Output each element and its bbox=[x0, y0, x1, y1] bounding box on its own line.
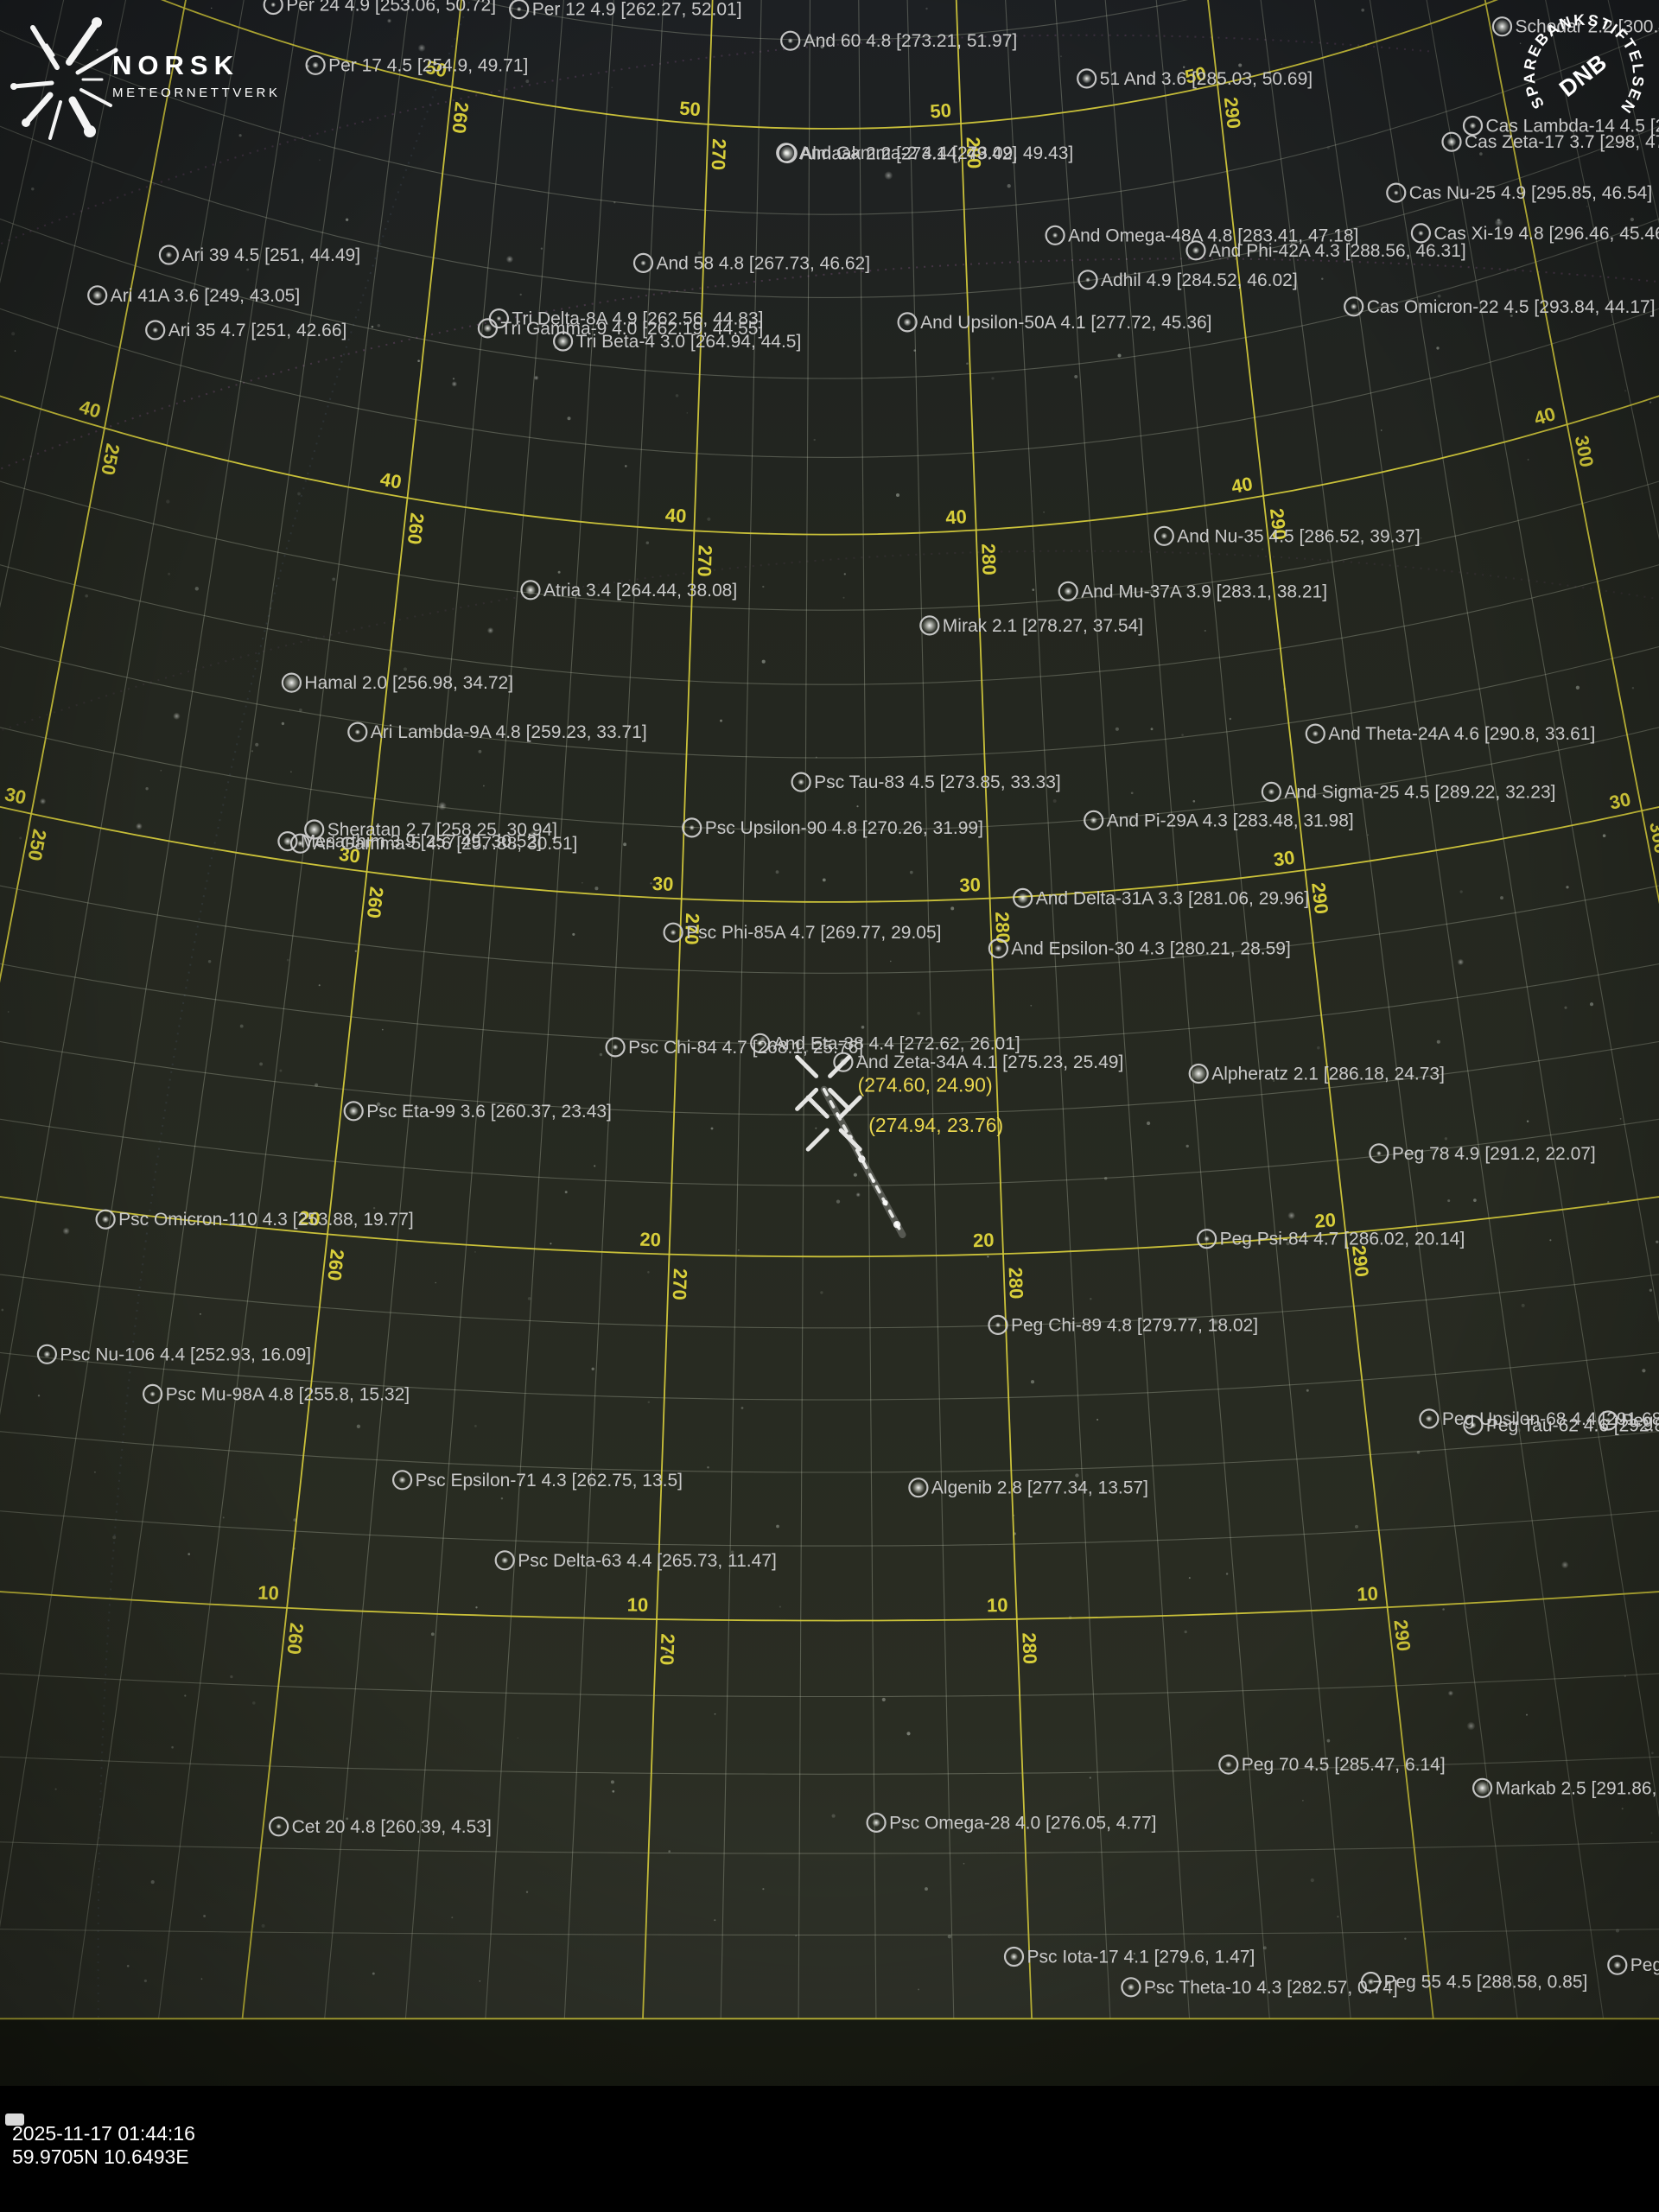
star-marker: Cas Omicron-22 4.5 [293.84, 44.17] bbox=[1344, 297, 1655, 317]
star-point bbox=[1613, 1961, 1621, 1969]
star-label: Peg 56 4.8 [296.3, 14.4] bbox=[1621, 1411, 1659, 1431]
star-label: Mirak 2.1 [278.27, 37.54] bbox=[943, 616, 1143, 636]
star-label: Ari 39 4.5 [251, 44.49] bbox=[181, 245, 360, 265]
star-marker: Psc Mu-98A 4.8 [255.8, 15.32] bbox=[143, 1384, 410, 1404]
star-label: Markab 2.5 [291.86, 5.4] bbox=[1496, 1778, 1659, 1798]
star-point bbox=[517, 7, 522, 12]
star-marker: And Eta-38 4.4 [272.62, 26.01] bbox=[751, 1033, 1020, 1053]
star-point bbox=[270, 3, 276, 8]
star-marker: And Theta-24A 4.6 [290.8, 33.61] bbox=[1306, 724, 1596, 744]
star-point bbox=[613, 1045, 619, 1051]
star-marker: Algenib 2.8 [277.34, 13.57] bbox=[909, 1478, 1148, 1498]
star-marker: Alpheratz 2.1 [286.18, 24.73] bbox=[1190, 1065, 1445, 1084]
star-label: And Mu-37A 3.9 [283.1, 38.21] bbox=[1081, 582, 1327, 601]
star-point bbox=[1090, 817, 1097, 823]
star-point bbox=[1476, 1781, 1490, 1795]
star-point bbox=[788, 38, 793, 43]
star-point bbox=[166, 251, 173, 258]
star-point bbox=[312, 62, 319, 69]
star-point bbox=[1495, 19, 1510, 34]
star-marker: And 60 4.8 [273.21, 51.97] bbox=[781, 31, 1017, 51]
star-marker: And Sigma-25 4.5 [289.22, 32.23] bbox=[1262, 782, 1556, 802]
footer-info: 2025-11-17 01:44:16 59.9705N 10.6493E bbox=[12, 2122, 195, 2169]
star-marker: And Delta-31A 3.3 [281.06, 29.96] bbox=[1014, 888, 1309, 908]
star-point bbox=[1268, 789, 1275, 796]
star-point bbox=[912, 1481, 925, 1494]
star-label: Peg Psi-84 4.7 [286.02, 20.14] bbox=[1220, 1230, 1465, 1249]
star-point bbox=[557, 335, 569, 347]
star-point bbox=[398, 1477, 405, 1484]
star-label: Ari Gamma-5 4.6 [257.88, 30.51] bbox=[314, 834, 578, 854]
star-marker: And 58 4.8 [267.73, 46.62] bbox=[634, 253, 870, 273]
star-point bbox=[1017, 893, 1028, 904]
star-point bbox=[1085, 277, 1090, 283]
star-marker: Psc Omicron-110 4.3 [253.88, 19.77] bbox=[97, 1210, 414, 1230]
star-label: And Nu-35 4.5 [286.52, 39.37] bbox=[1177, 526, 1420, 546]
star-marker: Ari Lambda-9A 4.8 [259.23, 33.71] bbox=[348, 722, 646, 742]
star-point bbox=[1204, 1236, 1210, 1242]
star-point bbox=[283, 675, 299, 690]
star-marker: Markab 2.5 [291.86, 5.4] bbox=[1473, 1778, 1659, 1798]
meteor-trail-bead bbox=[882, 1200, 887, 1205]
star-label: Psc Tau-83 4.5 [273.85, 33.33] bbox=[814, 772, 1061, 792]
star-point bbox=[43, 1351, 50, 1357]
star-label: Alpheratz 2.1 [286.18, 24.73] bbox=[1211, 1065, 1445, 1084]
star-label: And Upsilon-50A 4.1 [277.72, 45.36] bbox=[920, 313, 1211, 333]
star-marker: Ari Gamma-5 4.6 [257.88, 30.51] bbox=[291, 834, 577, 854]
star-point bbox=[1192, 247, 1199, 254]
star-point bbox=[1605, 1418, 1611, 1423]
star-point bbox=[995, 944, 1001, 951]
star-marker: Psc Eta-99 3.6 [260.37, 23.43] bbox=[345, 1102, 612, 1122]
star-marker: Ari 35 4.7 [251, 42.66] bbox=[146, 321, 346, 340]
star-marker: Hamal 2.0 [256.98, 34.72] bbox=[283, 673, 513, 693]
sky-canvas[interactable]: 1026010270102801029020260202702028020290… bbox=[0, 0, 1659, 2212]
star-marker: Peg Psi-84 4.7 [286.02, 20.14] bbox=[1198, 1230, 1465, 1249]
star-marker: Cas Nu-25 4.9 [295.85, 46.54] bbox=[1387, 183, 1652, 203]
star-marker: Psc Nu-106 4.4 [252.93, 16.09] bbox=[38, 1344, 311, 1364]
star-point bbox=[783, 149, 790, 156]
star-point bbox=[1418, 231, 1423, 236]
star-point bbox=[1426, 1415, 1433, 1422]
star-point bbox=[149, 1391, 155, 1396]
logo-network-name: NORSK bbox=[112, 50, 239, 80]
star-label: Psc Iota-17 4.1 [279.6, 1.47] bbox=[1027, 1948, 1255, 1967]
star-point bbox=[1161, 533, 1168, 540]
star-label: And Gamma-2 4.4 [273.09, 49.43] bbox=[799, 143, 1074, 163]
star-point bbox=[671, 930, 677, 936]
star-point bbox=[525, 585, 536, 595]
star-label: Psc Omega-28 4.0 [276.05, 4.77] bbox=[889, 1813, 1156, 1833]
star-point bbox=[757, 1039, 764, 1046]
station-coordinates: 59.9705N 10.6493E bbox=[12, 2145, 195, 2169]
star-label: Psc Mu-98A 4.8 [255.8, 15.32] bbox=[166, 1384, 410, 1404]
star-label: Hamal 2.0 [256.98, 34.72] bbox=[304, 673, 513, 693]
star-point bbox=[297, 841, 303, 847]
footer-black-bar bbox=[0, 2086, 1659, 2212]
star-point bbox=[501, 1557, 508, 1564]
star-marker: And Upsilon-50A 4.1 [277.72, 45.36] bbox=[899, 313, 1212, 333]
star-marker: And Pi-29A 4.3 [283.48, 31.98] bbox=[1084, 810, 1354, 830]
star-marker: And Epsilon-30 4.3 [280.21, 28.59] bbox=[989, 939, 1291, 959]
star-label: 51 And 3.6 [285.03, 50.69] bbox=[1100, 69, 1313, 89]
star-label: Psc Nu-106 4.4 [252.93, 16.09] bbox=[60, 1344, 311, 1364]
meteor-trail-bead bbox=[893, 1221, 900, 1228]
star-point bbox=[276, 1824, 281, 1829]
star-marker: Peg 55 4.5 [288.58, 0.85] bbox=[1362, 1973, 1587, 1993]
star-label: Atria 3.4 [264.44, 38.08] bbox=[543, 581, 737, 601]
star-point bbox=[484, 324, 493, 333]
star-label: And Pi-29A 4.3 [283.48, 31.98] bbox=[1107, 810, 1354, 830]
star-label: Per 24 4.9 [253.06, 50.72] bbox=[286, 0, 496, 16]
star-label: Psc Epsilon-71 4.3 [262.75, 13.5] bbox=[416, 1471, 683, 1491]
star-marker: Per 12 4.9 [262.27, 52.01] bbox=[510, 0, 741, 20]
star-label: Psc Eta-99 3.6 [260.37, 23.43] bbox=[366, 1102, 612, 1122]
star-point bbox=[355, 729, 360, 734]
star-label: And Zeta-34A 4.1 [275.23, 25.49] bbox=[856, 1052, 1123, 1072]
star-marker: Ari 41A 3.6 [249, 43.05] bbox=[88, 286, 300, 306]
star-marker: Psc Omega-28 4.0 [276.05, 4.77] bbox=[868, 1813, 1157, 1833]
star-label: Cet 20 4.8 [260.39, 4.53] bbox=[292, 1817, 492, 1837]
star-marker: Cas Zeta-17 3.7 [298, 47.3] bbox=[1443, 132, 1659, 152]
star-point bbox=[1010, 1953, 1018, 1961]
star-point bbox=[1128, 1984, 1135, 1991]
star-marker: Psc Epsilon-71 4.3 [262.75, 13.5] bbox=[393, 1471, 683, 1491]
star-marker: Psc Phi-85A 4.7 [269.77, 29.05] bbox=[664, 923, 942, 943]
star-marker: Tri Beta-4 3.0 [264.94, 44.5] bbox=[554, 332, 801, 352]
star-label: Per 17 4.5 [254.9, 49.71] bbox=[328, 55, 528, 75]
sky-camera-view[interactable]: 1026010270102801029020260202702028020290… bbox=[0, 0, 1659, 2212]
star-marker: Peg 70 4.5 [285.47, 6.14] bbox=[1219, 1755, 1445, 1775]
meteor-trail-bead bbox=[858, 1155, 865, 1162]
meteor-trail-bead bbox=[872, 1179, 875, 1183]
star-label: Per 12 4.9 [262.27, 52.01] bbox=[532, 0, 742, 20]
star-marker: Peg Chi-89 4.8 [279.77, 18.02] bbox=[989, 1315, 1259, 1335]
star-marker: Ari 39 4.5 [251, 44.49] bbox=[160, 245, 360, 265]
star-label: And Eta-38 4.4 [272.62, 26.01] bbox=[773, 1033, 1020, 1053]
star-point bbox=[1470, 1422, 1476, 1428]
star-marker: Per 24 4.9 [253.06, 50.72] bbox=[264, 0, 496, 16]
star-label: Ari 35 4.7 [251, 42.66] bbox=[168, 321, 347, 340]
star-marker: And Nu-35 4.5 [286.52, 39.37] bbox=[1155, 526, 1421, 546]
star-label: Psc Upsilon-90 4.8 [270.26, 31.99] bbox=[705, 818, 983, 838]
star-marker: Cet 20 4.8 [260.39, 4.53] bbox=[270, 1817, 492, 1837]
star-point bbox=[995, 1322, 1001, 1327]
star-label: And Epsilon-30 4.3 [280.21, 28.59] bbox=[1011, 939, 1290, 959]
star-point bbox=[922, 618, 938, 633]
star-marker: Psc Delta-63 4.4 [265.73, 11.47] bbox=[496, 1551, 777, 1571]
star-point bbox=[1191, 1066, 1206, 1082]
star-label: And Delta-31A 3.3 [281.06, 29.96] bbox=[1036, 888, 1309, 908]
star-label: Cas Omicron-22 4.5 [293.84, 44.17] bbox=[1367, 297, 1656, 317]
star-label: Algenib 2.8 [277.34, 13.57] bbox=[931, 1478, 1148, 1498]
star-point bbox=[1376, 1151, 1382, 1156]
star-point bbox=[640, 260, 645, 265]
star-label: Psc Theta-10 4.3 [282.57, 0.74] bbox=[1144, 1978, 1398, 1998]
star-label: Cas Zeta-17 3.7 [298, 47.3] bbox=[1465, 132, 1659, 152]
star-marker: And Mu-37A 3.9 [283.1, 38.21] bbox=[1059, 582, 1327, 601]
star-point bbox=[1351, 303, 1357, 310]
star-point bbox=[1313, 731, 1319, 737]
star-marker: And Phi-42A 4.3 [288.56, 46.31] bbox=[1187, 241, 1466, 261]
star-label: Ari Lambda-9A 4.8 [259.23, 33.71] bbox=[371, 722, 647, 742]
star-label: Adhil 4.9 [284.52, 46.02] bbox=[1101, 270, 1298, 290]
star-label: Cas Nu-25 4.9 [295.85, 46.54] bbox=[1409, 183, 1652, 203]
star-point bbox=[1394, 190, 1399, 195]
star-point bbox=[904, 318, 912, 326]
star-label: Psc Omicron-110 4.3 [253.88, 19.77] bbox=[118, 1210, 414, 1230]
star-label: Peg 78 4.9 [291.2, 22.07] bbox=[1392, 1144, 1596, 1164]
star-marker: Peg 78 4.9 [291.2, 22.07] bbox=[1370, 1144, 1595, 1164]
logo-network-sub: METEORNETTVERK bbox=[112, 86, 281, 100]
star-point bbox=[349, 1106, 359, 1116]
star-label: And 60 4.8 [273.21, 51.97] bbox=[804, 31, 1018, 51]
star-point bbox=[798, 779, 804, 785]
star-point bbox=[1447, 137, 1457, 147]
star-label: And 58 4.8 [267.73, 46.62] bbox=[657, 253, 871, 273]
star-marker: Psc Upsilon-90 4.8 [270.26, 31.99] bbox=[683, 818, 983, 838]
star-marker: Psc Iota-17 4.1 [279.6, 1.47] bbox=[1005, 1948, 1255, 1967]
star-marker: Per 17 4.5 [254.9, 49.71] bbox=[307, 55, 529, 75]
star-label: Peg 70 4.5 [285.47, 6.14] bbox=[1242, 1755, 1446, 1775]
star-marker: And Gamma-2 4.4 [273.09, 49.43] bbox=[777, 143, 1073, 163]
star-marker: Mirak 2.1 [278.27, 37.54] bbox=[920, 616, 1143, 636]
star-point bbox=[92, 290, 102, 300]
star-label: Psc Delta-63 4.4 [265.73, 11.47] bbox=[518, 1551, 777, 1571]
star-point bbox=[1052, 232, 1058, 238]
star-point bbox=[1368, 1979, 1375, 1986]
star-label: Cas Xi-19 4.8 [296.46, 45.46] bbox=[1433, 224, 1659, 244]
star-point bbox=[1082, 73, 1091, 83]
star-label: And Theta-24A 4.6 [290.8, 33.61] bbox=[1328, 724, 1595, 744]
star-point bbox=[1225, 1761, 1232, 1768]
star-marker: Psc Tau-83 4.5 [273.85, 33.33] bbox=[792, 772, 1061, 792]
star-label: Peg Chi-89 4.8 [279.77, 18.02] bbox=[1011, 1315, 1258, 1335]
star-point bbox=[1470, 123, 1477, 130]
star-point bbox=[152, 327, 158, 334]
capture-timestamp: 2025-11-17 01:44:16 bbox=[12, 2122, 195, 2145]
meteor-coordinate-label: (274.60, 24.90) bbox=[858, 1073, 993, 1096]
star-marker: Adhil 4.9 [284.52, 46.02] bbox=[1079, 270, 1298, 290]
star-point bbox=[1064, 587, 1072, 595]
star-label: And Sigma-25 4.5 [289.22, 32.23] bbox=[1284, 782, 1555, 802]
star-point bbox=[690, 825, 695, 830]
meteor-coordinate-label: (274.94, 23.76) bbox=[868, 1114, 1003, 1136]
star-point bbox=[102, 1216, 109, 1223]
star-label: Peg Xi-46 4.2 [294.5, 1.2] bbox=[1630, 1955, 1659, 1975]
star-marker: Atria 3.4 [264.44, 38.08] bbox=[522, 581, 738, 601]
star-label: And Phi-42A 4.3 [288.56, 46.31] bbox=[1209, 241, 1466, 261]
star-marker: Psc Theta-10 4.3 [282.57, 0.74] bbox=[1122, 1978, 1397, 1998]
star-marker: And Zeta-34A 4.1 [275.23, 25.49] bbox=[834, 1052, 1123, 1072]
star-marker: 51 And 3.6 [285.03, 50.69] bbox=[1077, 69, 1313, 89]
star-label: Tri Beta-4 3.0 [264.94, 44.5] bbox=[576, 332, 802, 352]
star-label: Peg 55 4.5 [288.58, 0.85] bbox=[1384, 1973, 1588, 1993]
star-point bbox=[872, 1819, 880, 1827]
star-label: Psc Phi-85A 4.7 [269.77, 29.05] bbox=[686, 923, 941, 943]
star-label: Ari 41A 3.6 [249, 43.05] bbox=[111, 286, 301, 306]
